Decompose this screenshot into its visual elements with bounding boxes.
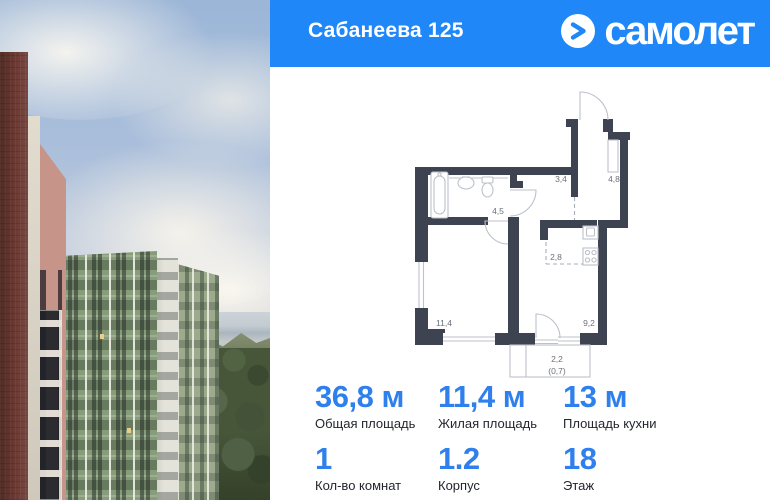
stat-label: Корпус	[438, 478, 480, 493]
stat-floor: 18 Этаж	[563, 443, 596, 493]
lit-window	[127, 428, 131, 433]
building-green-far	[177, 264, 219, 500]
room-area-label: 11,4	[436, 318, 452, 328]
stat-rooms-count: 1 Кол-во комнат	[315, 443, 401, 493]
stat-value: 1	[315, 443, 401, 474]
balcony-area-label: 2,2	[551, 354, 563, 364]
living-door-arc	[485, 221, 508, 244]
stat-label: Жилая площадь	[438, 416, 537, 431]
building-maroon	[0, 52, 28, 500]
building-pier	[27, 116, 40, 500]
plan-labels: 3,4 4,8 4,5 2,8 11,4 9,2 2,2 (0,7)	[436, 174, 620, 376]
stat-value: 36,8 м	[315, 381, 415, 412]
room-area-label: 2,8	[550, 252, 562, 262]
floor-plan: 3,4 4,8 4,5 2,8 11,4 9,2 2,2 (0,7)	[270, 67, 770, 500]
building-green	[61, 251, 157, 500]
sink	[458, 177, 474, 189]
stat-kitchen-area: 13 м Площадь кухни	[563, 381, 656, 431]
stat-label: Общая площадь	[315, 416, 415, 431]
stat-value: 13 м	[563, 381, 656, 412]
bathroom-door-arc	[510, 190, 536, 216]
brand-name: самолет	[604, 11, 754, 51]
building-photo	[0, 0, 270, 500]
entrance-door-arc	[580, 92, 608, 120]
room-area-label: 3,4	[555, 174, 567, 184]
room-area-label: 9,2	[583, 318, 595, 328]
balcony-reduced-label: (0,7)	[548, 366, 566, 376]
toilet	[482, 177, 493, 183]
header-bar: Сабанеева 125 самолет	[270, 0, 770, 67]
project-title: Сабанеева 125	[308, 19, 464, 43]
stat-label: Этаж	[563, 478, 596, 493]
plan-panel: 3,4 4,8 4,5 2,8 11,4 9,2 2,2 (0,7) 36,8 …	[270, 67, 770, 500]
building-white	[155, 258, 178, 500]
stat-value: 11,4 м	[438, 381, 537, 412]
stat-value: 18	[563, 443, 596, 474]
lit-window	[100, 334, 104, 339]
listing-card: Сабанеева 125 самолет	[0, 0, 770, 500]
samolet-logo-icon	[561, 14, 595, 48]
stat-value: 1.2	[438, 443, 480, 474]
stat-living-area: 11,4 м Жилая площадь	[438, 381, 537, 431]
stat-total-area: 36,8 м Общая площадь	[315, 381, 415, 431]
room-area-label: 4,5	[492, 206, 504, 216]
stat-building: 1.2 Корпус	[438, 443, 480, 493]
stat-label: Кол-во комнат	[315, 478, 401, 493]
brand-logo[interactable]: самолет	[561, 11, 754, 51]
shaft	[608, 140, 618, 172]
room-area-label: 4,8	[608, 174, 620, 184]
stat-label: Площадь кухни	[563, 416, 656, 431]
